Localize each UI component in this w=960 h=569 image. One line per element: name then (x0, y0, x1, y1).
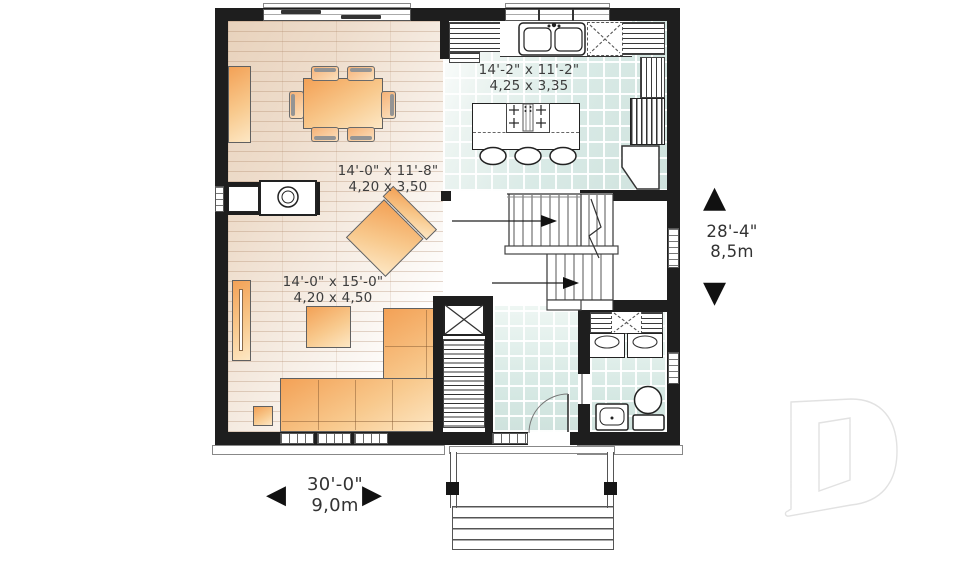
window-frame-line (264, 14, 410, 15)
living-window (280, 433, 314, 444)
kitchen-metric: 4,25 x 3,35 (449, 78, 609, 94)
dining-chair (347, 66, 375, 81)
entry-sidelight (492, 433, 528, 444)
wall-bath-top (578, 300, 667, 312)
window-frame-line (506, 14, 609, 15)
buffet (228, 66, 251, 143)
dining-chair (311, 66, 339, 81)
wall-closet-left (433, 296, 443, 432)
entry-hall-window (668, 228, 679, 268)
wall-bath-left-upper (578, 300, 590, 374)
window-sash (281, 10, 321, 14)
window-mullion (538, 9, 540, 21)
wall-closet-top (433, 296, 493, 306)
chair-back (291, 94, 295, 116)
living-imperial: 14'-0" x 15'-0" (253, 274, 413, 290)
dishwasher (587, 22, 623, 56)
dining-imperial: 14'-0" x 11'-8" (308, 163, 468, 179)
pocket-door (581, 374, 583, 405)
entry-tile-floor (493, 306, 578, 432)
dining-chair (347, 127, 375, 142)
stair-direction-arrow (452, 215, 579, 289)
staircase (452, 193, 618, 310)
cushion-seam (355, 380, 356, 430)
dining-dimensions-label: 14'-0" x 11'-8" 4,20 x 3,50 (308, 163, 468, 195)
dining-table (303, 78, 383, 129)
dryer (627, 333, 663, 358)
depth-metric: 8,5m (700, 242, 764, 262)
chair-back (350, 136, 372, 140)
kitchen-window (505, 9, 610, 21)
cushion-seam (385, 346, 435, 347)
bathroom-window (668, 352, 679, 384)
refrigerator (630, 98, 665, 145)
dining-chair (289, 91, 304, 119)
entry-door-opening (528, 432, 570, 445)
dining-chair (311, 127, 339, 142)
media-shelf (232, 280, 251, 361)
wall-left (215, 8, 228, 445)
exterior-sill (263, 3, 411, 8)
builder-logo-watermark (783, 392, 908, 520)
sofa-bottom-section (280, 378, 437, 432)
arrow-down-icon: ▼ (703, 278, 726, 308)
cushion-seam (318, 380, 319, 430)
kitchen-dimensions-label: 14'-2" x 11'-2" 4,25 x 3,35 (449, 62, 609, 94)
wall-closet-right (485, 296, 493, 432)
arrow-left-icon: ◀ (266, 482, 286, 508)
window-sash (341, 15, 381, 19)
porch-post (446, 482, 459, 495)
wall-bath-left-lower (578, 404, 590, 432)
cooktop (506, 103, 550, 133)
dining-metric: 4,20 x 3,50 (308, 179, 468, 195)
porch-rail (450, 452, 457, 508)
chair-back (350, 68, 372, 72)
dining-chair (381, 91, 396, 119)
cushion-seam (392, 380, 393, 430)
floor-plan-canvas: 14'-2" x 11'-2" 4,25 x 3,35 14'-0" x 11'… (0, 0, 960, 569)
arrow-up-icon: ▲ (703, 183, 726, 213)
depth-imperial: 28'-4" (700, 222, 764, 242)
chair-back (314, 136, 336, 140)
porch-edge (449, 446, 615, 454)
chimney-box (443, 303, 485, 336)
kitchen-counter (449, 22, 501, 52)
arrow-right-icon: ▶ (362, 482, 382, 508)
washer (589, 333, 625, 358)
depth-dimension-label: 28'-4" 8,5m (700, 222, 764, 262)
living-window (354, 433, 388, 444)
living-dimensions-label: 14'-0" x 15'-0" 4,20 x 4,50 (253, 274, 413, 306)
porch-post (604, 482, 617, 495)
window-mullion (572, 9, 574, 21)
living-metric: 4,20 x 4,50 (253, 290, 413, 306)
wall-kitchen-divider (440, 21, 449, 59)
chair-back (314, 68, 336, 72)
side-table (253, 406, 273, 426)
closet-shelving (443, 339, 485, 428)
porch-steps (452, 506, 614, 550)
cushion-seam (282, 421, 435, 422)
fireplace-nook (228, 186, 259, 212)
porch-rail (607, 452, 614, 508)
vent-box (611, 311, 642, 334)
shelf-slot (239, 289, 243, 351)
side-cabinet (640, 57, 665, 98)
kitchen-imperial: 14'-2" x 11'-2" (449, 62, 609, 78)
window-sill-ledge (212, 445, 445, 455)
chair-back (390, 94, 394, 116)
exterior-sill (505, 3, 610, 8)
left-wall-window (215, 186, 224, 212)
coffee-table (306, 306, 351, 348)
wall-stair-top (580, 190, 667, 201)
living-window (317, 433, 351, 444)
